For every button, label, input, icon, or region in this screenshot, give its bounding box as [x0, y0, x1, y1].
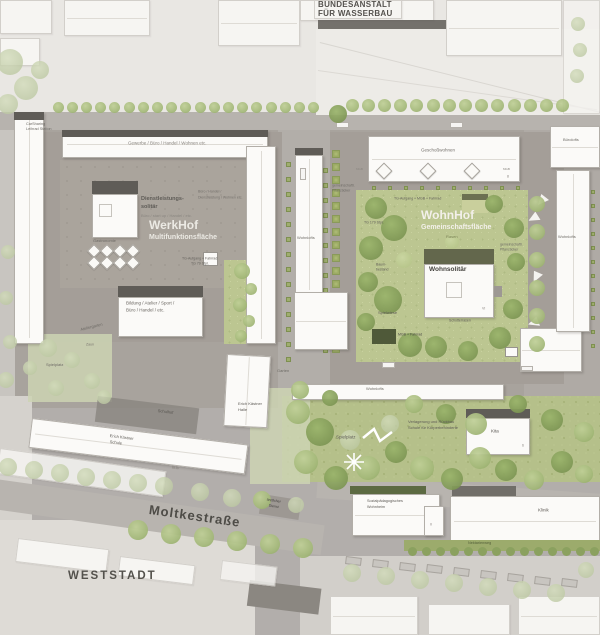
tree	[362, 99, 375, 112]
planter-square	[420, 186, 424, 190]
building	[330, 596, 418, 635]
tree	[551, 451, 573, 473]
map-label: Nektarienweg	[468, 541, 491, 545]
tree	[556, 99, 569, 112]
map-label: bestand	[376, 268, 388, 272]
buerolofts-building	[550, 126, 600, 168]
planter-square	[323, 228, 328, 233]
map-label: Kita	[491, 429, 499, 434]
tree	[291, 381, 309, 399]
parked-car	[399, 562, 416, 572]
planter-square	[286, 222, 291, 227]
west-edge-street	[0, 130, 15, 408]
tree	[191, 483, 209, 501]
tree	[491, 99, 504, 112]
tree	[340, 430, 360, 450]
tree	[394, 99, 407, 112]
building	[505, 347, 518, 357]
tree	[288, 497, 304, 513]
tree	[571, 17, 585, 31]
tree	[161, 524, 181, 544]
planter-square	[332, 163, 340, 171]
tree	[227, 531, 247, 551]
geschosswohnen-building	[368, 136, 520, 182]
planter-square	[408, 547, 417, 556]
map-label: WerkHof	[149, 219, 198, 231]
map-label: Rasen	[446, 235, 458, 239]
tree	[286, 400, 310, 424]
planter-square	[332, 280, 340, 288]
tree	[223, 102, 234, 113]
map-label: Sozialpädagogisches	[367, 499, 403, 503]
planter-square	[286, 312, 291, 317]
tree	[346, 99, 359, 112]
tree	[410, 456, 434, 480]
planter-square	[323, 258, 328, 263]
map-label: Wohnlofts	[366, 387, 384, 391]
tree	[152, 102, 163, 113]
map-label: MGB	[503, 168, 510, 171]
tree	[529, 196, 545, 212]
tree	[1, 245, 15, 259]
building	[518, 596, 600, 635]
planter-square	[286, 162, 291, 167]
tree	[166, 102, 177, 113]
planter-square	[591, 302, 595, 306]
parked-car	[521, 366, 533, 371]
klinik	[450, 496, 600, 546]
planter-square	[591, 190, 595, 194]
north-street	[0, 112, 600, 132]
tree	[524, 470, 544, 490]
tree	[322, 390, 338, 406]
map-label: TG 179 Stpl.	[364, 221, 384, 225]
tree	[95, 102, 106, 113]
planter-square	[500, 186, 504, 190]
planter-square	[286, 267, 291, 272]
tree	[575, 465, 593, 483]
planter-square	[286, 297, 291, 302]
tree	[53, 102, 64, 113]
tree	[39, 339, 57, 357]
map-label: III-IV	[172, 466, 180, 470]
tree	[3, 335, 17, 349]
tree	[81, 102, 92, 113]
tree	[294, 102, 305, 113]
planter-square	[332, 241, 340, 249]
planter-square	[332, 254, 340, 262]
building	[99, 204, 112, 217]
map-label: solitär	[141, 204, 158, 210]
map-label: Wohnsolitär	[429, 267, 466, 274]
map-label: Büro / Handel / etc.	[126, 308, 165, 313]
map-label: Wohnlofts	[297, 236, 315, 240]
tree	[489, 327, 511, 349]
tree	[459, 99, 472, 112]
tree	[356, 456, 380, 480]
planter-square	[286, 237, 291, 242]
tree	[529, 336, 545, 352]
tree	[396, 252, 412, 268]
planter-square	[286, 327, 291, 332]
map-label: Dienstleistungs-	[141, 196, 184, 202]
tree	[381, 415, 399, 433]
tree	[64, 352, 80, 368]
map-label: BUNDESANSTALT	[318, 1, 392, 9]
tree	[14, 76, 38, 100]
tree	[458, 341, 478, 361]
tree	[411, 571, 429, 589]
planter-square	[286, 192, 291, 197]
map-label: Garten	[277, 369, 289, 373]
parked-car	[450, 122, 463, 128]
planter-square	[520, 547, 529, 556]
tree	[109, 102, 120, 113]
tree	[343, 564, 361, 582]
tree	[485, 195, 503, 213]
building	[446, 282, 462, 298]
map-label: TG-Aufgang + MGB + Fahrrad	[394, 197, 441, 201]
erich-kaestner-halle	[223, 354, 271, 428]
tree	[234, 263, 250, 279]
planter-square	[286, 207, 291, 212]
planter-square	[591, 344, 595, 348]
map-label: Spielplatz	[46, 363, 63, 367]
tree	[541, 409, 563, 431]
building	[14, 112, 44, 120]
center-south-building	[294, 292, 348, 350]
building	[452, 486, 516, 496]
planter-square	[286, 282, 291, 287]
planter-square	[332, 228, 340, 236]
tree	[540, 99, 553, 112]
map-label: Dienstleistung / Wohnen etc.	[198, 196, 242, 200]
map-label: TG 79 Stpl.	[191, 262, 209, 266]
map-label: TG-Aufgang + Fahrrad	[182, 257, 217, 261]
planter-square	[591, 316, 595, 320]
building	[424, 506, 444, 536]
map-label: Wohnlofts	[558, 235, 576, 239]
planter-square	[332, 215, 340, 223]
tree	[479, 578, 497, 596]
map-label: Verlagerung und Rückbau	[408, 420, 454, 424]
tree	[97, 390, 111, 404]
tree	[475, 99, 488, 112]
planter-square	[591, 204, 595, 208]
tree	[381, 215, 407, 241]
tree	[280, 102, 291, 113]
planter-square	[332, 267, 340, 275]
building	[350, 486, 426, 494]
tree	[103, 471, 121, 489]
building	[446, 0, 562, 56]
tree	[443, 99, 456, 112]
map-label: Wohnheim	[367, 505, 385, 509]
werkhof-west-building	[14, 112, 44, 344]
tree	[398, 333, 422, 357]
planter-square	[591, 288, 595, 292]
map-label: WESTSTADT	[68, 571, 157, 583]
tree	[378, 99, 391, 112]
map-label: WohnHof	[421, 209, 474, 221]
tree	[237, 102, 248, 113]
building	[428, 604, 510, 635]
planter-square	[323, 243, 328, 248]
planter-square	[591, 218, 595, 222]
building	[0, 0, 52, 34]
map-label: Schule für Körperbehinderte	[408, 426, 458, 430]
planter-square	[436, 547, 445, 556]
planter-square	[436, 186, 440, 190]
planter-square	[332, 150, 340, 158]
tree	[385, 441, 407, 463]
wohnlofts-east-building	[556, 170, 590, 332]
map-label: Spielwiese	[378, 311, 397, 315]
tree	[23, 361, 37, 375]
map-label: Erich Kästner	[238, 402, 262, 406]
tree	[235, 330, 247, 342]
building	[295, 148, 323, 155]
planter-square	[591, 274, 595, 278]
map-label: Baum-	[376, 263, 386, 267]
bildungsbau-roof	[118, 286, 203, 297]
tree	[48, 380, 64, 396]
planter-square	[450, 547, 459, 556]
map-label: 6	[522, 444, 524, 448]
tree	[465, 413, 487, 435]
planter-square	[323, 183, 328, 188]
tree	[573, 43, 587, 57]
wohnsolitaer-roof	[424, 249, 494, 264]
planter-square	[452, 186, 456, 190]
parked-car	[300, 168, 306, 180]
tree	[495, 459, 517, 481]
tree	[509, 395, 527, 413]
tree	[570, 69, 584, 83]
tree	[243, 315, 255, 327]
planter-square	[562, 547, 571, 556]
tree	[357, 313, 375, 331]
planter-square	[548, 547, 557, 556]
planter-square	[404, 186, 408, 190]
map-label: Multifunktionsfläche	[149, 234, 217, 241]
planter-square	[332, 176, 340, 184]
tree	[441, 468, 463, 490]
planter-square	[286, 342, 291, 347]
tree	[425, 336, 447, 358]
planter-square	[484, 186, 488, 190]
planter-square	[591, 232, 595, 236]
tree	[84, 373, 100, 389]
tree	[513, 581, 531, 599]
map-label: Büro / Handel /	[198, 190, 221, 194]
tree	[138, 102, 149, 113]
tree	[233, 298, 247, 312]
tree	[306, 418, 334, 446]
map-label: Gastronomie	[93, 239, 116, 243]
tree	[31, 61, 49, 79]
tree	[529, 308, 545, 324]
planter-square	[372, 186, 376, 190]
tree	[529, 280, 545, 296]
map-label: Gemeinschaftsfläche	[421, 224, 491, 231]
map-label: Klinik	[538, 508, 549, 513]
planter-square	[591, 330, 595, 334]
map-label: Bürolofts	[563, 138, 579, 142]
tree	[129, 474, 147, 492]
map-label: Pflanzäcker	[332, 189, 350, 193]
planter-square	[591, 246, 595, 250]
map-label: Schotterrasen	[449, 319, 471, 323]
tree	[223, 489, 241, 507]
map-label: VI	[482, 307, 485, 311]
tree	[67, 102, 78, 113]
tree	[529, 252, 545, 268]
building	[62, 130, 268, 137]
tree	[245, 283, 257, 295]
planter-square	[506, 547, 515, 556]
tree	[294, 450, 318, 474]
parked-car	[382, 362, 395, 368]
planter-square	[534, 547, 543, 556]
site-plan: BUNDESANSTALTFÜR WASSERBAUCarSharingLeih…	[0, 0, 600, 635]
planter-square	[286, 252, 291, 257]
map-label: gemeinschaftl.	[500, 243, 523, 247]
planter-square	[422, 547, 431, 556]
tree	[308, 102, 319, 113]
tree	[410, 99, 423, 112]
planter-square	[332, 202, 340, 210]
tree	[180, 102, 191, 113]
building	[494, 286, 502, 297]
planter-square	[286, 177, 291, 182]
map-label: 8	[507, 175, 509, 179]
map-label: Leihrad Station	[26, 127, 52, 131]
planter-square	[286, 357, 291, 362]
tree	[128, 520, 148, 540]
building	[218, 0, 300, 46]
planter-square	[492, 547, 501, 556]
tree	[293, 538, 313, 558]
map-label: Zaun	[86, 343, 94, 347]
planter-square	[576, 547, 585, 556]
map-label: FÜR WASSERBAU	[318, 10, 393, 18]
map-label: Pflanzäcker	[500, 248, 518, 252]
map-label: MGB + Fahrrad	[398, 333, 422, 337]
planter-square	[590, 547, 599, 556]
planter-square	[468, 186, 472, 190]
tree	[405, 395, 423, 413]
tree	[77, 468, 95, 486]
tree	[524, 99, 537, 112]
planter-square	[591, 260, 595, 264]
parked-car	[534, 576, 551, 586]
map-label: Gewerbe / Büro / Handel / Wohnen etc.	[128, 141, 206, 146]
map-label: Geschoßwohnen	[421, 148, 455, 153]
tree	[469, 447, 491, 469]
planter-square	[323, 273, 328, 278]
planter-square	[323, 198, 328, 203]
planter-square	[323, 168, 328, 173]
planter-square	[516, 186, 520, 190]
tree	[251, 102, 262, 113]
map-label: Halle	[238, 408, 247, 412]
tree	[358, 272, 378, 292]
tree	[574, 422, 594, 442]
map-label: Bildung / Atelier / Sport /	[126, 301, 174, 306]
tree	[359, 236, 383, 260]
planter-square	[323, 213, 328, 218]
tree	[503, 299, 523, 319]
building	[64, 0, 150, 36]
tree	[209, 102, 220, 113]
tree	[427, 99, 440, 112]
tree	[195, 102, 206, 113]
map-label: CarSharing	[26, 122, 45, 126]
tree	[266, 102, 277, 113]
map-label: gemeinschaftl.	[332, 184, 355, 188]
tree	[124, 102, 135, 113]
planter-square	[388, 186, 392, 190]
tree	[329, 105, 347, 123]
map-label: MGB	[356, 168, 363, 171]
map-label: II	[430, 523, 432, 527]
tree	[578, 562, 594, 578]
tree	[529, 224, 545, 240]
mgb-box	[372, 329, 396, 344]
tree	[508, 99, 521, 112]
planter-square	[478, 547, 487, 556]
planter-square	[464, 547, 473, 556]
tree	[504, 218, 524, 238]
tree	[365, 197, 387, 219]
tree	[507, 253, 525, 271]
tree	[324, 466, 348, 490]
dienstleistungssolitaer-roof	[92, 181, 138, 194]
map-label: Spielplatz	[336, 435, 356, 440]
